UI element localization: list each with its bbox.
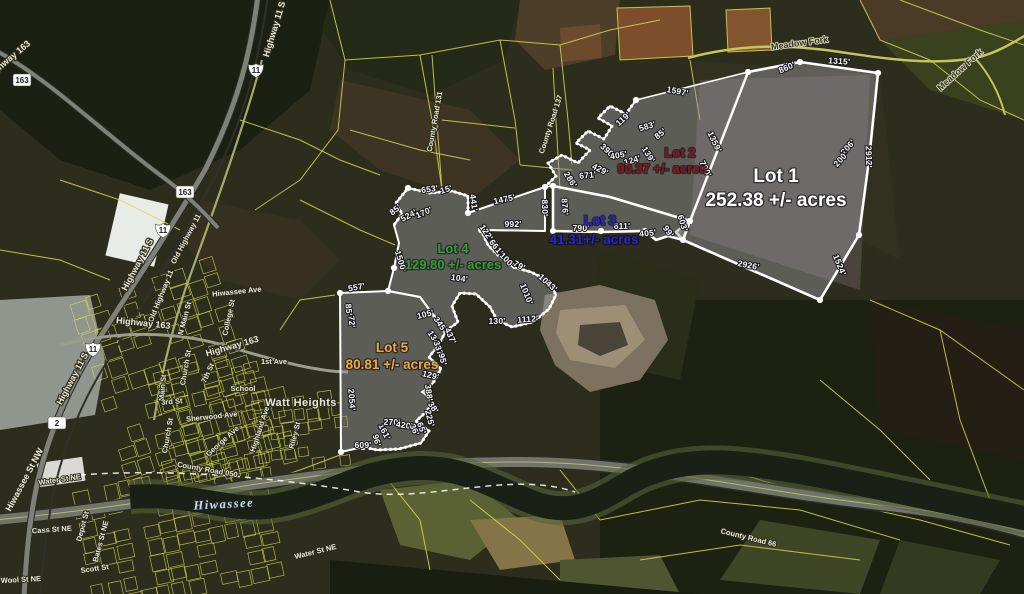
- lot-acres-label: 90.37 +/- acres: [617, 161, 706, 176]
- measurement-label: 1112': [517, 313, 539, 324]
- measurement-label: 130': [488, 316, 505, 326]
- lot-acres-label: 129.80 +/- acres: [405, 257, 502, 272]
- highway-shield-163: 163: [176, 186, 194, 198]
- lot-acres-label: 41.31+/- acres: [550, 232, 639, 247]
- shield-number: 2: [55, 419, 60, 428]
- satellite-map: 860'1315'1597'1359'790'2912'206'200'1524…: [0, 0, 1024, 594]
- measurement-label: 1315': [828, 55, 851, 67]
- measurement-label: 830': [540, 199, 551, 216]
- shield-number: 11: [89, 345, 98, 354]
- lot-acres-label: 252.38 +/- acres: [705, 190, 846, 211]
- vertex-dot: [405, 185, 411, 191]
- measurement-label: 992': [504, 219, 521, 229]
- vertex-dot: [856, 232, 862, 238]
- property-map: 860'1315'1597'1359'790'2912'206'200'1524…: [0, 0, 1024, 594]
- measurement-label: 72': [346, 315, 357, 328]
- measurement-label: 611': [614, 221, 631, 231]
- lot-name-label: Lot 4: [437, 241, 469, 256]
- highway-shield-163: 163: [13, 74, 31, 86]
- vertex-dot: [745, 69, 751, 75]
- measurement-label: 2912': [864, 146, 875, 168]
- vertex-dot: [542, 184, 548, 190]
- vertex-dot: [550, 183, 556, 189]
- vertex-dot: [337, 290, 343, 296]
- highway-shield-2: 2: [48, 417, 66, 429]
- lot-name-label: Lot 3: [584, 213, 617, 228]
- measurement-label: 876': [559, 198, 570, 216]
- vertex-dot: [875, 70, 881, 76]
- vertex-dot: [338, 449, 344, 455]
- lot-name-label: Lot 2: [664, 145, 695, 160]
- vertex-dot: [817, 297, 823, 303]
- vertex-dot: [633, 97, 639, 103]
- measurement-label: 2054': [346, 388, 358, 411]
- measurement-label: 671': [579, 169, 597, 181]
- road-label: 1st Ave: [261, 357, 287, 366]
- shield-number: 163: [178, 188, 192, 197]
- shield-number: 11: [159, 226, 168, 235]
- shield-number: 163: [15, 76, 29, 85]
- vertex-dot: [680, 237, 686, 243]
- measurement-label: 405': [639, 227, 657, 239]
- lot-name-label: Lot 1: [753, 166, 799, 187]
- lot-name-label: Lot 5: [376, 340, 409, 355]
- road-label: School: [230, 384, 255, 393]
- lot-acres-label: 80.81 +/- acres: [346, 357, 439, 372]
- road-label: Watt Heights: [265, 397, 337, 409]
- measurement-label: 85': [343, 303, 354, 316]
- vertex-dot: [391, 265, 397, 271]
- road-label: 3rd St: [161, 396, 183, 406]
- measurement-label: 609': [354, 440, 371, 450]
- vertex-dot: [797, 59, 803, 65]
- vertex-dot: [385, 288, 391, 294]
- shield-number: 11: [252, 66, 261, 75]
